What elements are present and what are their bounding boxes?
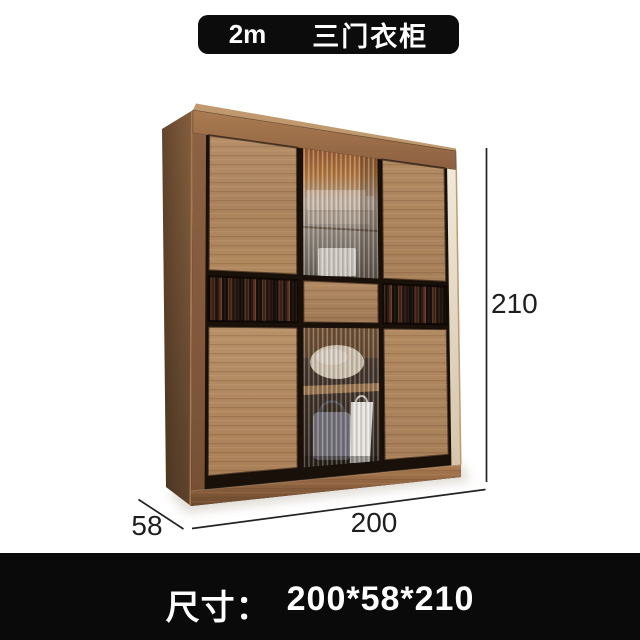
title-size-tag: 2m [229,19,267,50]
size-banner-label: 尺寸： [166,580,271,629]
title-banner: 2m 三门衣柜 [198,15,459,54]
glass-panel-upper [300,145,382,281]
height-dimension-label: 210 [491,290,538,318]
width-dimension-label: 200 [338,509,410,537]
wardrobe-product-image [0,0,640,640]
depth-dimension-label: 58 [122,512,172,540]
tinted-glass-right [383,284,447,324]
frame-left-stile [191,133,206,491]
glass-panel-lower [300,325,383,471]
wardrobe-left-side-panel [162,110,193,506]
tinted-glass-left [209,276,298,322]
product-page: 210 200 58 2m 三门衣柜 尺寸： 200*58*210 [0,0,640,640]
title-product-name: 三门衣柜 [312,15,428,54]
size-banner: 尺寸： 200*58*210 [0,553,640,640]
size-banner-value: 200*58*210 [287,580,475,629]
